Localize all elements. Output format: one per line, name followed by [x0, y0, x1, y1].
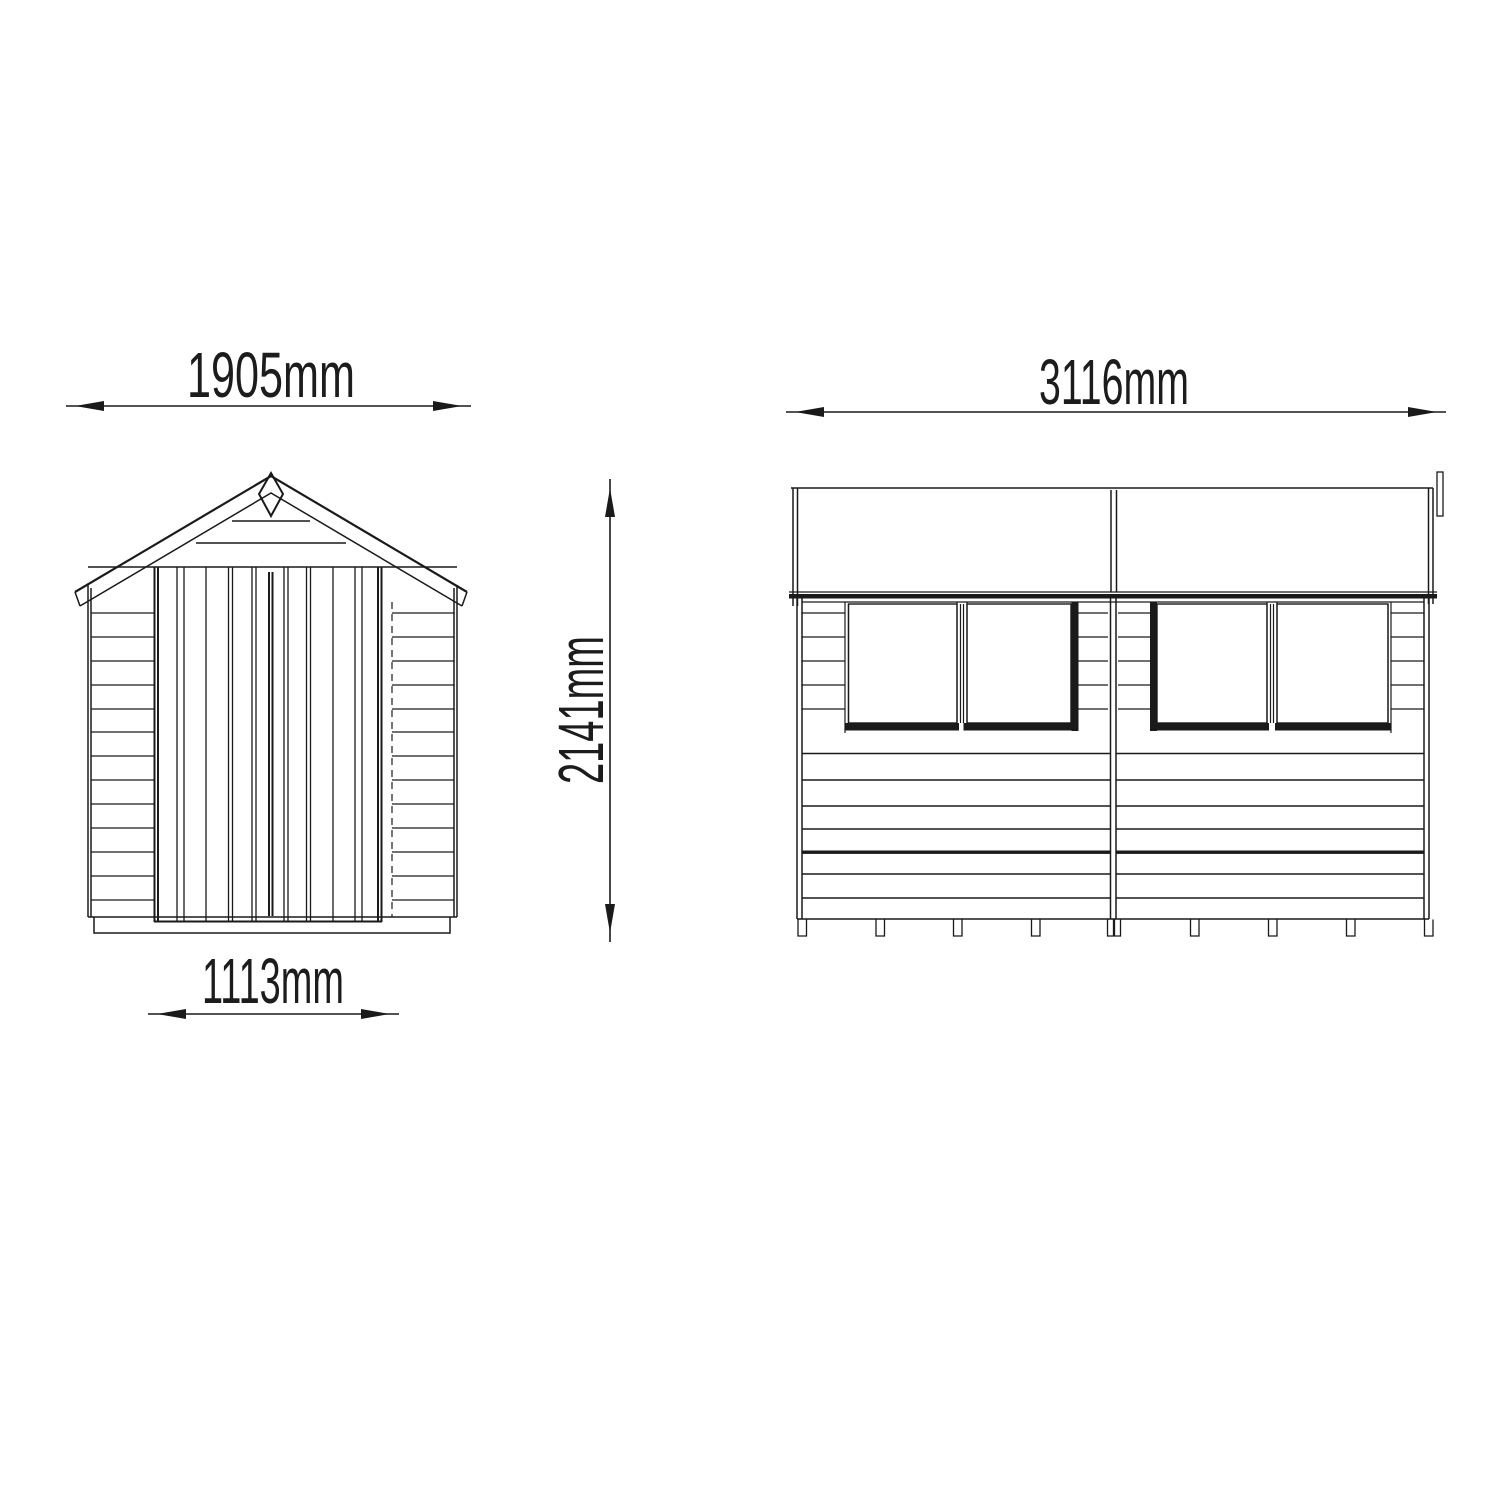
front-base — [94, 917, 450, 933]
window-1 — [849, 604, 958, 723]
dimension-side-length: 3116mm — [786, 346, 1446, 418]
arrowhead-left-icon — [795, 407, 824, 417]
arrowhead-left-icon — [157, 1009, 186, 1019]
arrowhead-right-icon — [1408, 407, 1437, 417]
side-length-label: 3116mm — [1039, 346, 1189, 418]
window-3-jamb — [1150, 602, 1157, 731]
arrowhead-up-icon — [605, 488, 615, 517]
window-2-sill — [964, 723, 1079, 731]
side-eave-band — [789, 594, 1437, 599]
window-4-sill — [1275, 723, 1391, 731]
arrowhead-left-icon — [75, 401, 104, 411]
side-siding-lower — [802, 754, 1424, 899]
shed-dimension-diagram: 1905mm 3116mm 1113mm 2141mm — [0, 0, 1500, 1500]
side-elevation-view — [789, 472, 1443, 936]
window-3-sill — [1150, 723, 1269, 731]
window-1-sill — [845, 723, 959, 731]
dimension-height: 2141mm — [545, 479, 617, 942]
side-wall-outline — [797, 598, 1429, 919]
front-siding-left — [91, 613, 154, 900]
side-siding-thick-line-right — [1117, 851, 1425, 854]
front-width-label: 1905mm — [187, 339, 355, 411]
side-window-frame-edges — [845, 602, 1391, 733]
window-3 — [1157, 604, 1267, 723]
window-2 — [967, 604, 1071, 723]
dimension-door-width: 1113mm — [148, 945, 399, 1019]
technical-drawing: 1905mm 3116mm 1113mm 2141mm — [0, 0, 1500, 1500]
front-elevation-view — [75, 473, 467, 933]
height-label: 2141mm — [545, 636, 617, 784]
side-siding-window-band — [802, 613, 1424, 709]
door-width-label: 1113mm — [202, 945, 344, 1017]
front-roof-inner — [75, 493, 467, 606]
side-feet — [798, 920, 1433, 937]
side-siding-thick-line-left — [802, 851, 1110, 854]
front-door-frame — [154, 567, 382, 922]
arrowhead-right-icon — [361, 1009, 390, 1019]
arrowhead-right-icon — [433, 401, 462, 411]
finial-diamond-icon — [259, 473, 283, 516]
window-4 — [1277, 604, 1388, 723]
front-siding-right — [392, 613, 454, 900]
dimension-front-width: 1905mm — [66, 339, 471, 411]
side-finial-tip — [1437, 472, 1443, 516]
arrowhead-down-icon — [605, 904, 615, 933]
side-roof-outline — [791, 488, 1433, 606]
window-2-jamb — [1072, 602, 1079, 731]
